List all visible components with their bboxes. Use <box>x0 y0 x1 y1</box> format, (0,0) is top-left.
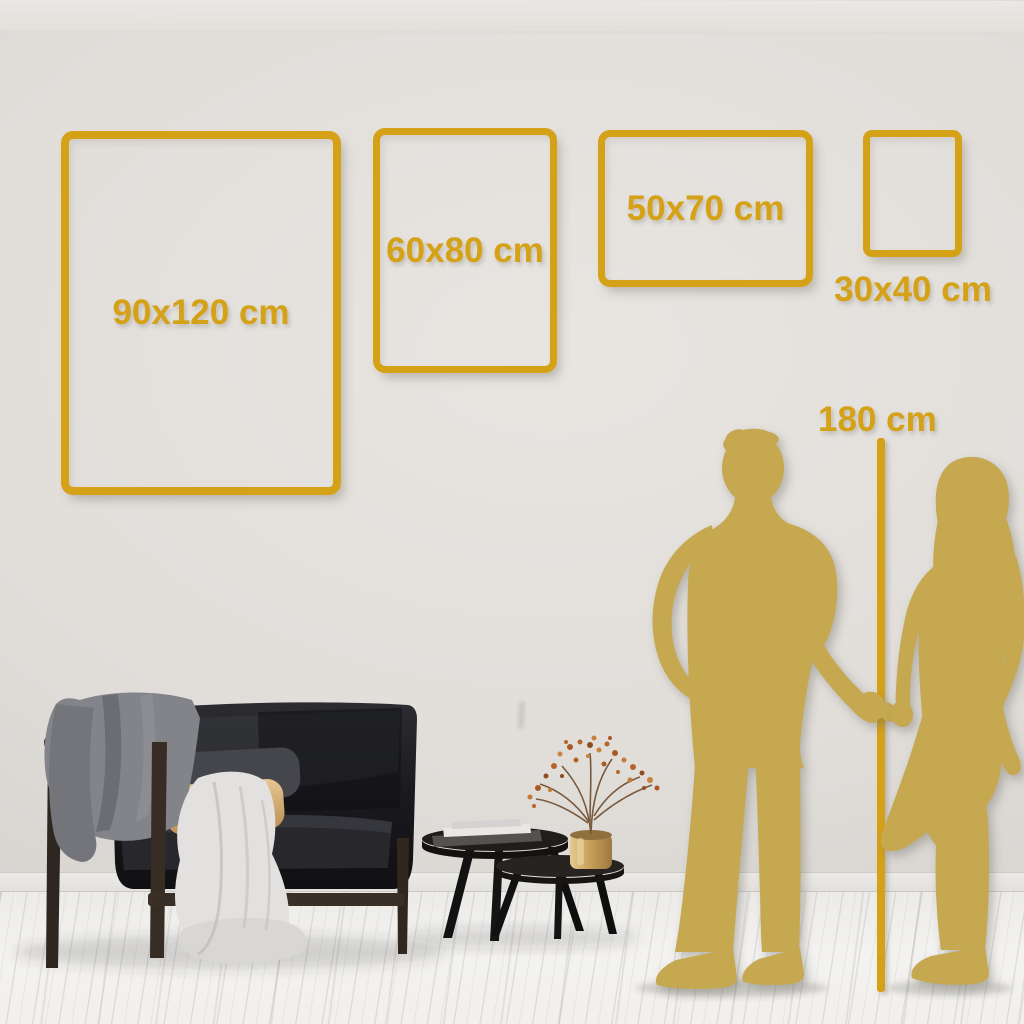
wood-floor <box>0 892 1024 1024</box>
ceiling <box>0 0 1024 34</box>
baseboard <box>0 872 1024 893</box>
size-frame-30x40 <box>863 130 962 257</box>
height-label: 180 cm <box>818 400 936 440</box>
size-frame-50x70: 50x70 cm <box>598 130 813 287</box>
size-frame-60x80: 60x80 cm <box>373 128 557 373</box>
poster-size-guide-scene: 90x120 cm 60x80 cm 50x70 cm 30x40 cm <box>0 0 1024 1024</box>
size-label-60x80: 60x80 cm <box>386 231 544 271</box>
height-reference-line <box>877 438 885 992</box>
size-label-90x120: 90x120 cm <box>112 293 289 333</box>
size-label-30x40: 30x40 cm <box>833 270 993 310</box>
size-frame-90x120: 90x120 cm <box>61 131 341 495</box>
size-label-50x70: 50x70 cm <box>627 189 785 229</box>
